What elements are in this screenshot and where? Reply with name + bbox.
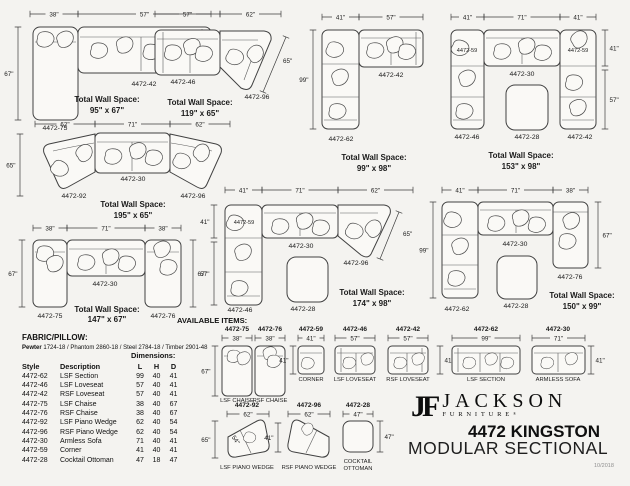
total-wall-space-value: 99" x 98" (357, 164, 391, 173)
table-desc-cell: RSF Chaise (60, 409, 132, 418)
dimension-line (19, 240, 26, 307)
dimension-line (377, 421, 384, 452)
config-d: 41" 71" 41" 41" 57" 4472-59 4472-59 4472… (449, 14, 619, 171)
part-label: 4472-30 (503, 241, 528, 248)
table-l-cell: 57 (132, 381, 148, 390)
config-e: 62" 71" 62" 65" 4472-92 4472-30 4472-96 … (6, 121, 230, 220)
dim-side: 99" (299, 30, 316, 129)
table-style-cell: 4472-30 (22, 437, 60, 446)
table-d-cell: 67 (165, 400, 182, 409)
collection-subtitle: MODULAR SECTIONAL (408, 438, 600, 459)
dim-label: 41" (573, 14, 582, 21)
dim-top: 62" (338, 187, 413, 195)
dim-side: 99" (419, 202, 436, 298)
dim-top: 71" (67, 225, 145, 233)
table-d-cell: 47 (165, 456, 182, 465)
dim-top: 62" (288, 411, 330, 419)
dim-label: 41" (239, 187, 248, 194)
dim-label: 71" (511, 187, 520, 194)
dim-label: 99" (299, 77, 308, 84)
dim-label: 62" (304, 411, 313, 418)
dim-label: 41" (455, 187, 464, 194)
dim-top: 41" (225, 187, 262, 195)
table-style-cell: 4472-92 (22, 418, 60, 427)
table-l-cell: 57 (132, 390, 148, 399)
part-label: 4472-96 (181, 193, 206, 200)
part-label: 4472-62 (445, 306, 470, 313)
dim-label: 57" (403, 335, 412, 342)
dim-top: 38" (255, 335, 285, 343)
part-label: 4472-28 (515, 134, 540, 141)
dim-label: 41" (610, 45, 619, 52)
item-style-label: 4472-62 (474, 326, 499, 333)
jackson-logo: JF JACKSON FURNITURE® (411, 394, 567, 420)
jf-monogram-icon: JF (411, 394, 436, 420)
dim-label: 41" (336, 14, 345, 21)
dim-label: 38" (232, 335, 241, 342)
total-wall-space-value: 147" x 67" (88, 315, 127, 324)
total-wall-space-label: Total Wall Space: (167, 98, 232, 107)
part-label: 4472-75 (38, 313, 63, 320)
dim-top: 41" (560, 14, 596, 22)
item-name-label: ARMLESS SOFA (536, 377, 581, 383)
dim-top: 38" (30, 11, 78, 19)
table-desc-cell: RSF Loveseat (60, 390, 132, 399)
dim-top: 57" (155, 11, 220, 19)
dimension-line (17, 134, 24, 196)
dimension-line (190, 240, 197, 307)
dim-top: 71" (478, 187, 553, 195)
dim-top: 57" (359, 14, 423, 22)
dim-label: 41" (306, 335, 315, 342)
part-label: 4472-30 (289, 243, 314, 250)
item-ottoman-shape (343, 421, 373, 452)
dim-label: 99" (419, 247, 428, 254)
dimension-line (588, 346, 595, 374)
dim-label: 57" (386, 14, 395, 21)
dim-label: 38" (265, 335, 274, 342)
dim-label: 41" (279, 357, 288, 364)
dim-label: 47" (353, 411, 362, 418)
part-label: 4472-42 (379, 72, 404, 79)
item-style-label: 4472-59 (299, 326, 324, 333)
table-desc-cell: Cocktail Ottoman (60, 456, 132, 465)
logo-text: JACKSON FURNITURE® (442, 394, 567, 418)
registered-mark: ® (513, 411, 520, 416)
dim-side: 65" (6, 134, 23, 196)
dim-side: 41" (602, 30, 619, 66)
fabric-heading: FABRIC/PILLOW: (22, 333, 207, 342)
table-desc-cell: Corner (60, 446, 132, 455)
total-wall-space-label: Total Wall Space: (74, 305, 139, 314)
dim-label: 67" (201, 368, 210, 375)
total-wall-space-label: Total Wall Space: (549, 291, 614, 300)
item-name-label: RSF PIANO WEDGE (282, 465, 337, 471)
part-label: 4472-42 (132, 81, 157, 88)
table-l-cell: 71 (132, 437, 148, 446)
part-label: 4472-30 (121, 176, 146, 183)
total-wall-space-value: 95" x 67" (90, 106, 124, 115)
part-label: 4472-76 (558, 274, 583, 281)
dim-label: 47" (385, 434, 394, 441)
table-l-cell: 62 (132, 428, 148, 437)
dim-top: 41" (298, 335, 324, 343)
brand-subname: FURNITURE® (442, 411, 567, 418)
table-l-cell: 62 (132, 418, 148, 427)
item-style-label: 4472-46 (343, 326, 368, 333)
table-style-cell: 4472-76 (22, 409, 60, 418)
config-g: 41" 71" 38" 99" 67" 4472-30 4472-76 4472… (419, 187, 614, 313)
available-items-row2: 4472-92 62" 65" 54" LSF PIANO WEDGE 4472… (201, 402, 394, 472)
dim-label: 67" (4, 71, 13, 78)
table-h-cell: 40 (148, 372, 165, 381)
col-height: H (148, 362, 165, 372)
total-wall-space-label: Total Wall Space: (341, 153, 406, 162)
dimension-line (212, 421, 219, 458)
corner-label: 4472-59 (457, 48, 478, 54)
dimension-line (211, 205, 218, 238)
dim-label: 71" (554, 335, 563, 342)
total-wall-space-label: Total Wall Space: (74, 95, 139, 104)
item-name-label: LSF PIANO WEDGE (220, 465, 274, 471)
dim-side: 47" (377, 421, 394, 452)
dim-side: 67" (190, 240, 207, 307)
ottoman-shape (497, 256, 537, 299)
dim-top: 62" (227, 411, 269, 419)
config-f: 41" 71" 62" 41" 57" 65" 4472-59 4472-30 … (200, 187, 413, 314)
brand-name: JACKSON (442, 394, 567, 409)
item-style-label: 4472-96 (297, 402, 322, 409)
dim-label: 62" (195, 121, 204, 128)
style-table: Dimensions: Style Description L H D 4472… (22, 351, 184, 465)
available-items-heading: AVAILABLE ITEMS: (177, 316, 247, 325)
table-d-cell: 41 (165, 381, 182, 390)
dimension-line (310, 30, 317, 129)
table-style-cell: 4472-46 (22, 381, 60, 390)
dim-top: 38" (553, 187, 588, 195)
dim-label: 65" (201, 437, 210, 444)
dim-label: 41" (200, 219, 209, 226)
table-h-cell: 18 (148, 456, 165, 465)
dim-label: 38" (158, 225, 167, 232)
item-style-label: 4472-75 (225, 326, 250, 333)
part-label: 4472-28 (504, 303, 529, 310)
dim-top: 41" (451, 14, 484, 22)
total-wall-space-value: 119" x 65" (181, 109, 219, 118)
corner-label: 4472-59 (568, 48, 589, 54)
dim-label: 62" (243, 411, 252, 418)
total-wall-space-value: 150" x 99" (563, 302, 602, 311)
item-name-label: LSF LOVESEAT (334, 377, 377, 383)
dim-side: 41" (200, 205, 217, 238)
corner-label: 4472-59 (234, 220, 255, 226)
table-d-cell: 67 (165, 409, 182, 418)
table-style-cell: 4472-75 (22, 400, 60, 409)
table-h-cell: 40 (148, 409, 165, 418)
dim-top: 99" (452, 335, 520, 343)
dim-top: 38" (33, 225, 67, 233)
ottoman-shape (506, 85, 548, 130)
total-wall-space-value: 153" x 98" (502, 162, 541, 171)
dim-label: 99" (481, 335, 490, 342)
dim-top: 62" (220, 11, 281, 19)
dim-label: 62" (60, 121, 69, 128)
dimension-line (437, 346, 444, 374)
dim-label: 57" (183, 11, 192, 18)
table-desc-cell: LSF Chaise (60, 400, 132, 409)
part-label: 4472-96 (344, 260, 369, 267)
item-style-label: 4472-76 (258, 326, 283, 333)
table-l-cell: 41 (132, 446, 148, 455)
table-l-cell: 99 (132, 372, 148, 381)
dim-top: 57" (388, 335, 428, 343)
dim-label: 38" (566, 187, 575, 194)
dimension-line (15, 27, 22, 120)
total-wall-space-value: 195" x 65" (114, 211, 153, 220)
item-name-label: LSF SECTION (467, 377, 505, 383)
table-rows: 4472-62LSF Section9940414472-46LSF Loves… (22, 372, 184, 465)
table-style-cell: 4472-42 (22, 390, 60, 399)
item-style-label: 4472-30 (546, 326, 571, 333)
dim-top: 71" (484, 14, 560, 22)
dim-side: 67" (4, 27, 21, 120)
table-desc-cell: Armless Sofa (60, 437, 132, 446)
dim-label: 62" (371, 187, 380, 194)
dim-side: 67" (595, 202, 612, 268)
table-h-cell: 40 (148, 390, 165, 399)
revision-date: 10/2018 (594, 463, 614, 469)
dim-top: 62" (170, 121, 230, 129)
dim-label: 65" (283, 58, 292, 65)
dimension-line (602, 30, 609, 66)
dim-side: 57" (602, 70, 619, 129)
dim-label: 71" (128, 121, 137, 128)
dim-label: 38" (45, 225, 54, 232)
dim-top: 57" (335, 335, 375, 343)
table-d-cell: 54 (165, 418, 182, 427)
dim-label: 71" (295, 187, 304, 194)
item-name-label: RSF LOVESEAT (386, 377, 430, 383)
table-desc-cell: LSF Piano Wedge (60, 418, 132, 427)
table-l-cell: 47 (132, 456, 148, 465)
fabric-pillow-block: FABRIC/PILLOW: Pewter 1724-18 / Phantom … (22, 333, 207, 351)
table-d-cell: 54 (165, 428, 182, 437)
part-label: 4472-46 (455, 134, 480, 141)
table-l-cell: 38 (132, 409, 148, 418)
table-d-cell: 41 (165, 390, 182, 399)
dim-side: 67" (201, 346, 218, 396)
part-label: 4472-46 (228, 307, 253, 314)
config-h: 38" 71" 38" 67" 67" 4472-75 4472-30 4472… (8, 225, 207, 324)
dimension-line (211, 242, 218, 305)
dim-top: 47" (343, 411, 373, 419)
dim-label: 62" (246, 11, 255, 18)
item-style-label: 4472-92 (235, 402, 260, 409)
dim-label: 67" (603, 232, 612, 239)
dim-top: 71" (95, 121, 170, 129)
table-style-cell: 4472-96 (22, 428, 60, 437)
item-name-label: COCKTAIL (344, 459, 373, 465)
brand-subname-text: FURNITURE (442, 411, 513, 418)
dimensions-label: Dimensions: (131, 351, 184, 360)
table-h-cell: 40 (148, 437, 165, 446)
dimension-line (595, 202, 602, 268)
table-l-cell: 38 (132, 400, 148, 409)
col-style: Style (22, 362, 60, 372)
part-label: 4472-76 (151, 313, 176, 320)
dim-label: 65" (6, 162, 15, 169)
dim-label: 38" (49, 11, 58, 18)
table-desc-cell: LSF Section (60, 372, 132, 381)
dim-top: 41" (322, 14, 359, 22)
part-label: 4472-92 (62, 193, 87, 200)
dim-label: 41" (463, 14, 472, 21)
table-style-cell: 4472-62 (22, 372, 60, 381)
dim-side: 41" (437, 346, 454, 374)
dimension-line (290, 346, 297, 374)
dim-label: 57" (140, 11, 149, 18)
dim-side: 41" (588, 346, 605, 374)
table-d-cell: 41 (165, 437, 182, 446)
dim-label: 65" (403, 231, 412, 238)
table-header-row: Style Description L H D (22, 362, 184, 372)
dim-side: 67" (8, 240, 25, 307)
col-depth: D (165, 362, 182, 372)
dim-label: 57" (350, 335, 359, 342)
dim-label: 71" (517, 14, 526, 21)
part-label: 4472-96 (245, 94, 270, 101)
lsf-wedge-shape (44, 134, 95, 188)
dimension-line (275, 423, 282, 452)
table-h-cell: 40 (148, 381, 165, 390)
table-h-cell: 40 (148, 400, 165, 409)
item-style-label: 4472-28 (346, 402, 371, 409)
col-length: L (132, 362, 148, 372)
dimension-line (212, 346, 219, 396)
dim-top: 71" (262, 187, 338, 195)
table-h-cell: 40 (148, 418, 165, 427)
part-label: 4472-30 (510, 71, 535, 78)
dim-label: 41" (596, 357, 605, 364)
dim-label: 41" (264, 435, 273, 442)
part-label: 4472-28 (291, 306, 316, 313)
ottoman-shape (287, 257, 328, 302)
total-wall-space-label: Total Wall Space: (339, 288, 404, 297)
part-label: 4472-62 (329, 136, 354, 143)
table-h-cell: 40 (148, 446, 165, 455)
item-name-label: OTTOMAN (344, 466, 373, 472)
dimension-line (602, 70, 609, 129)
table-h-cell: 40 (148, 428, 165, 437)
table-d-cell: 41 (165, 372, 182, 381)
dim-top: 71" (532, 335, 585, 343)
item-name-label: CORNER (298, 377, 323, 383)
part-label: 4472-46 (171, 79, 196, 86)
table-style-cell: 4472-28 (22, 456, 60, 465)
dimension-line (430, 202, 437, 298)
part-label: 4472-30 (93, 281, 118, 288)
dim-label: 67" (8, 271, 17, 278)
dim-label: 67" (198, 271, 207, 278)
total-wall-space-label: Total Wall Space: (488, 151, 553, 160)
dim-top: 38" (145, 225, 181, 233)
total-wall-space-label: Total Wall Space: (100, 200, 165, 209)
dim-top: 38" (222, 335, 252, 343)
table-style-cell: 4472-59 (22, 446, 60, 455)
total-wall-space-value: 174" x 98" (353, 299, 392, 308)
table-d-cell: 41 (165, 446, 182, 455)
dim-top: 41" (442, 187, 478, 195)
dim-side: 65" (201, 421, 218, 458)
dim-label: 57" (610, 97, 619, 104)
config-c: 41" 57" 99" 4472-62 4472-42 Total Wall S… (299, 14, 423, 173)
table-desc-cell: RSF Piano Wedge (60, 428, 132, 437)
table-desc-cell: LSF Loveseat (60, 381, 132, 390)
part-label: 4472-42 (568, 134, 593, 141)
item-style-label: 4472-42 (396, 326, 421, 333)
dim-label: 71" (101, 225, 110, 232)
spec-sheet: 38" 57" 67" 4472-75 4472-42 Total Wall S… (0, 0, 630, 486)
col-description: Description (60, 362, 132, 372)
